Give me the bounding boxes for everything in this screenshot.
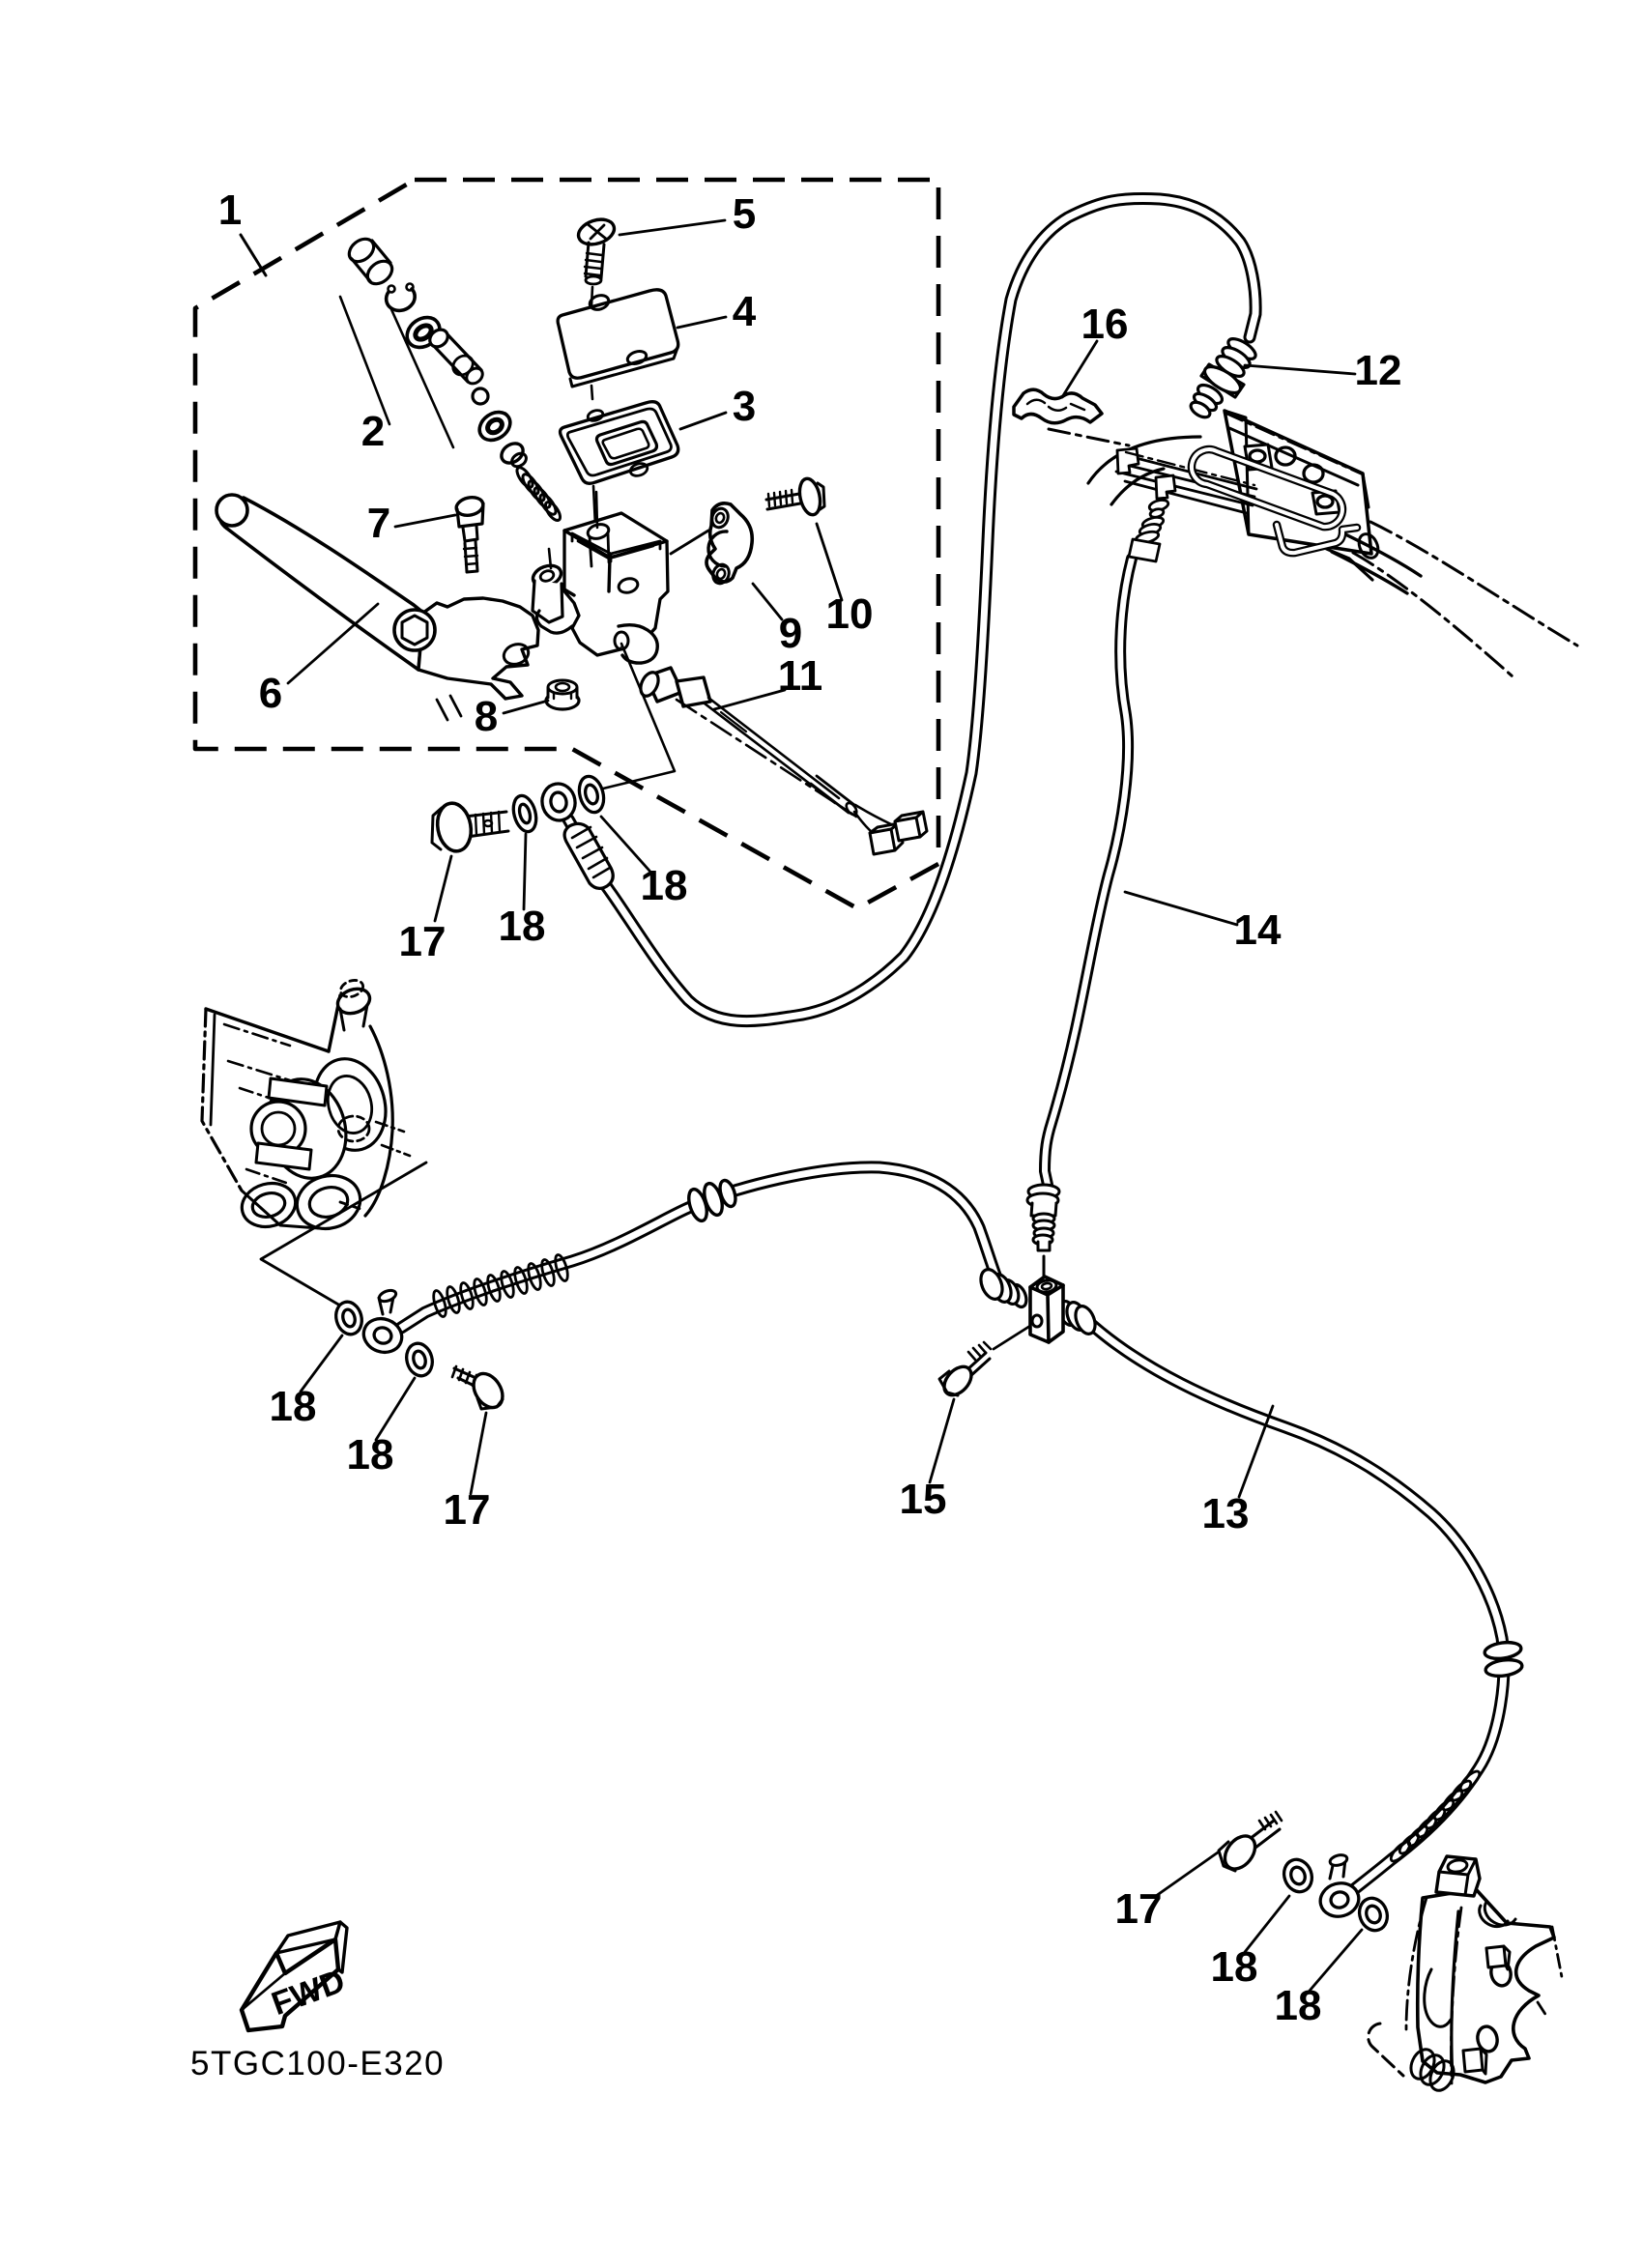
svg-text:6: 6 bbox=[259, 670, 282, 717]
svg-text:12: 12 bbox=[1355, 347, 1402, 394]
svg-text:18: 18 bbox=[1211, 1943, 1258, 1991]
svg-text:18: 18 bbox=[641, 862, 688, 909]
svg-text:5: 5 bbox=[733, 190, 756, 238]
svg-text:4: 4 bbox=[733, 288, 757, 335]
svg-text:15: 15 bbox=[900, 1476, 947, 1523]
svg-text:18: 18 bbox=[270, 1383, 317, 1430]
svg-text:11: 11 bbox=[778, 652, 823, 700]
svg-text:10: 10 bbox=[826, 590, 874, 638]
svg-text:3: 3 bbox=[733, 383, 756, 430]
svg-text:17: 17 bbox=[1115, 1885, 1163, 1933]
svg-text:18: 18 bbox=[347, 1431, 394, 1479]
svg-text:9: 9 bbox=[779, 610, 802, 657]
svg-text:2: 2 bbox=[361, 408, 385, 455]
svg-text:16: 16 bbox=[1081, 301, 1129, 348]
svg-text:14: 14 bbox=[1234, 906, 1282, 954]
svg-text:13: 13 bbox=[1202, 1490, 1250, 1537]
svg-text:7: 7 bbox=[367, 500, 390, 547]
svg-text:17: 17 bbox=[444, 1486, 491, 1534]
svg-text:8: 8 bbox=[475, 693, 498, 740]
svg-text:18: 18 bbox=[499, 903, 546, 950]
svg-text:18: 18 bbox=[1275, 1982, 1322, 2029]
svg-text:1: 1 bbox=[218, 187, 242, 234]
svg-text:17: 17 bbox=[399, 918, 447, 965]
svg-text:5TGC100-E320: 5TGC100-E320 bbox=[190, 2045, 445, 2082]
